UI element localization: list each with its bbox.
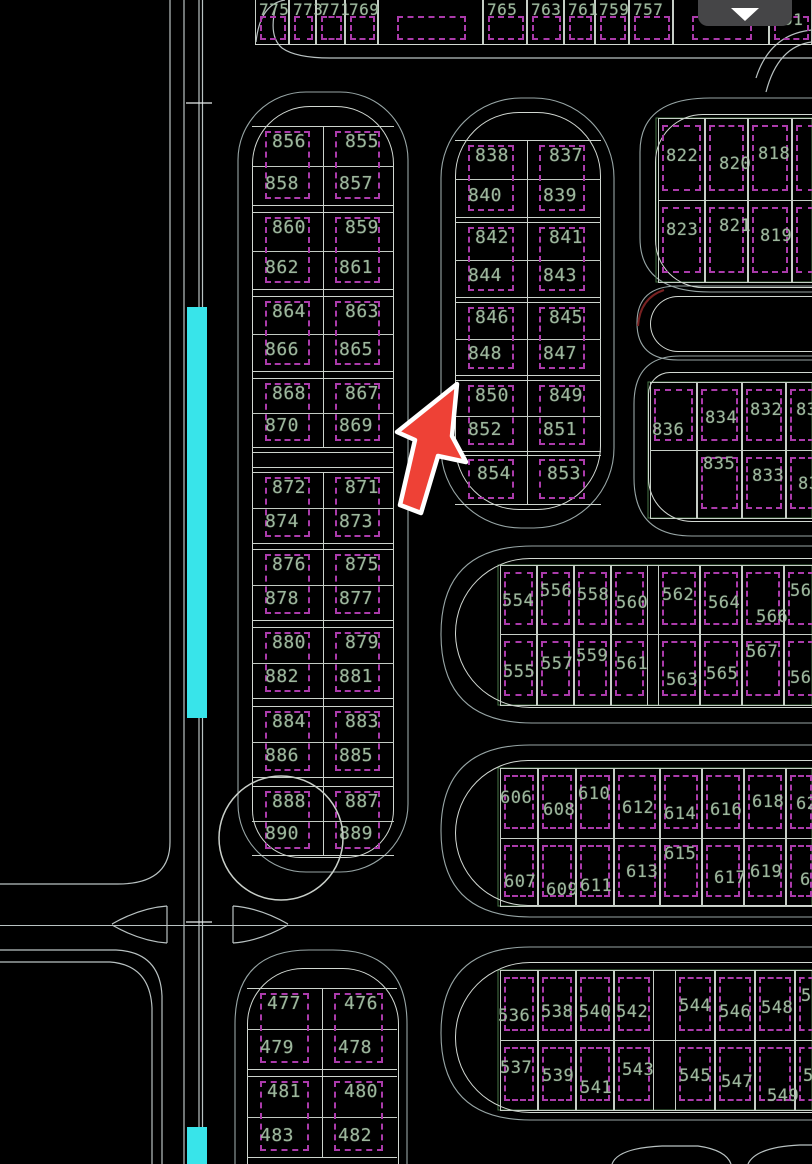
parcel-number: 616 [710,802,742,819]
parcel-number: 621 [800,872,812,889]
parcel-number: 868 [272,385,306,403]
parcel-number: 873 [339,513,373,531]
parcel-cell: 761 [564,0,595,44]
parcel-number: 614 [664,806,696,823]
parcel-number: 819 [760,228,792,245]
parcel-number: 543 [622,1062,654,1079]
parcel-number: 476 [344,995,378,1013]
parcel-number: 860 [272,219,306,237]
parcel-number: 834 [705,410,737,427]
parcel-number: 551 [803,1068,812,1085]
parcel-cell [650,450,697,518]
highlight-strip-bottom [187,1127,207,1164]
parcel-number: 842 [475,229,509,247]
parcel-number: 617 [714,870,746,887]
parcel-number: 538 [541,1004,573,1021]
parcel-boundary-box [294,16,313,40]
parcel-number: 862 [265,259,299,277]
parcel-number: 858 [265,175,299,193]
parcel-number: 611 [580,878,612,895]
parcel-number: 822 [666,148,698,165]
parcel-number: 775 [259,2,289,18]
parcel-number: 613 [626,864,658,881]
parcel-boundary-box [532,16,561,40]
parcel-number: 554 [502,593,534,610]
parcel-number: 550 [801,988,812,1005]
parcel-number: 854 [477,465,511,483]
parcel-number: 882 [265,668,299,686]
parcel-number: 845 [549,309,583,327]
parcel-number: 480 [344,1083,378,1101]
parcel-number: 608 [543,802,575,819]
parcel-number: 479 [260,1039,294,1057]
alley-line [253,452,393,453]
parcel-number: 567 [746,644,778,661]
parcel-number: 765 [487,2,517,18]
parcel-number: 558 [577,587,609,604]
parcel-boundary-box [321,16,342,40]
parcel-number: 615 [664,846,696,863]
parcel-cell: 765 [483,0,527,44]
parcel-number: 876 [272,556,306,574]
parcel-number: 537 [500,1060,532,1077]
parcel-number: 482 [338,1127,372,1145]
parcel-number: 564 [708,595,740,612]
parcel-number: 870 [265,417,299,435]
parcel-number: 843 [543,267,577,285]
parcel-boundary-box [796,125,812,191]
parcel-number: 881 [339,668,373,686]
parcel-number: 887 [345,793,379,811]
parcel-number: 560 [616,595,648,612]
parcel-number: 872 [272,479,306,497]
parcel-number: 865 [339,341,373,359]
parcel-number: 840 [468,187,502,205]
parcel-number: 852 [468,421,502,439]
parcel-number: 546 [719,1004,751,1021]
parcel-number: 836 [652,422,684,439]
row-divider [500,906,812,907]
parcel-number: 761 [568,2,598,18]
parcel-cell: 771 [316,0,345,44]
parcel-number: 885 [339,747,373,765]
parcel-number: 610 [578,786,610,803]
parcel-cell: 757 [629,0,673,44]
parcel-boundary-box [397,16,466,40]
parcel-number: 569 [790,670,812,687]
parcel-number: 880 [272,634,306,652]
parcel-number: 568 [790,583,812,600]
row-divider [650,518,812,519]
parcel-number: 838 [475,147,509,165]
parcel-number: 884 [272,713,306,731]
parcel-number: 563 [666,672,698,689]
parcel-cell: 773 [289,0,316,44]
parcel-number: 607 [504,874,536,891]
parcel-number: 869 [339,417,373,435]
parcel-number: 856 [272,133,306,151]
parcel-number: 757 [633,2,663,18]
parcel-number: 542 [616,1004,648,1021]
parcel-number: 883 [345,713,379,731]
parcel-number: 539 [542,1068,574,1085]
parcel-number: 477 [267,995,301,1013]
parcel-number: 618 [752,794,784,811]
parcel-boundary-box [662,207,701,273]
parcel-number: 857 [339,175,373,193]
parcel-number: 559 [576,648,608,665]
parcel-number: 849 [549,387,583,405]
parcel-number: 867 [345,385,379,403]
parcel-number: 831 [798,476,812,493]
parcel-number: 877 [339,590,373,608]
map-canvas[interactable]: 8568558588578608598628618648638668658688… [0,0,812,1164]
parcel-number: 544 [679,998,711,1015]
parcel-number: 864 [272,303,306,321]
parcel-number: 818 [758,146,790,163]
parcel-number: 555 [503,664,535,681]
parcel-number: 837 [549,147,583,165]
parcel-number: 846 [475,309,509,327]
parcel-number: 890 [265,825,299,843]
parcel-number: 769 [349,2,379,18]
alley-line [253,467,393,468]
parcel-number: 853 [547,465,581,483]
parcel-boundary-box [796,207,812,273]
parcel-number: 848 [468,345,502,363]
parcel-number: 606 [500,790,532,807]
parcel-number: 888 [272,793,306,811]
parcel-number: 821 [719,218,751,235]
parcel-number: 861 [339,259,373,277]
parcel-boundary-box [569,16,592,40]
parcel-cell: 775 [255,0,289,44]
parcel-number: 540 [579,1004,611,1021]
parcel-number: 833 [752,468,784,485]
parcel-number: 547 [721,1074,753,1091]
parcel-number: 619 [750,864,782,881]
parcel-number: 855 [345,133,379,151]
parcel-number: 545 [679,1068,711,1085]
parcel-number: 609 [546,882,578,899]
parcel-number: 565 [706,666,738,683]
parcel-number: 620 [796,796,812,813]
parcel-number: 841 [549,229,583,247]
parcel-number: 886 [265,747,299,765]
parcel-cell [378,0,483,44]
row-divider [658,282,812,283]
parcel-cell: 763 [527,0,564,44]
parcel-number: 871 [345,479,379,497]
parcel-number: 879 [345,634,379,652]
parcel-number: 557 [541,656,573,673]
parcel-number: 823 [666,222,698,239]
parcel-number: 548 [761,1000,793,1017]
parcel-number: 612 [622,800,654,817]
parcel-cell: 769 [345,0,378,44]
chevron-down-icon [731,8,759,21]
parcel-number: 541 [580,1080,612,1097]
parcel-number: 866 [265,341,299,359]
parcel-number: 562 [662,587,694,604]
parcel-number: 830 [796,402,812,419]
parcel-number: 561 [616,656,648,673]
parcel-number: 763 [531,2,561,18]
parcel-number: 850 [475,387,509,405]
parcel-number: 889 [339,825,373,843]
parcel-number: 820 [719,156,751,173]
parcel-number: 536 [498,1008,530,1025]
parcel-cell: 759 [595,0,629,44]
parcel-number: 839 [543,187,577,205]
parcel-number: 874 [265,513,299,531]
parcel-number: 875 [345,556,379,574]
row-divider [500,705,812,706]
parcel-number: 859 [345,219,379,237]
parcel-number: 835 [703,456,735,473]
parcel-number: 832 [750,402,782,419]
parcel-number: 481 [267,1083,301,1101]
highlight-strip [187,307,207,718]
parcel-number: 478 [338,1039,372,1057]
row-divider [500,1110,812,1111]
empty-stadium-block-outline [650,296,812,352]
parcel-boundary-box [260,16,286,40]
parcel-number: 844 [468,267,502,285]
parcel-number: 863 [345,303,379,321]
parcel-number: 847 [543,345,577,363]
parcel-boundary-box [350,16,375,40]
parcel-boundary-box [600,16,626,40]
parcel-number: 556 [540,583,572,600]
parcel-number: 483 [260,1127,294,1145]
parcel-number: 759 [599,2,629,18]
parcel-number: 851 [543,421,577,439]
parcel-number: 878 [265,590,299,608]
collapse-panel-button[interactable] [698,0,792,26]
parcel-boundary-box [488,16,524,40]
parcel-boundary-box [634,16,670,40]
